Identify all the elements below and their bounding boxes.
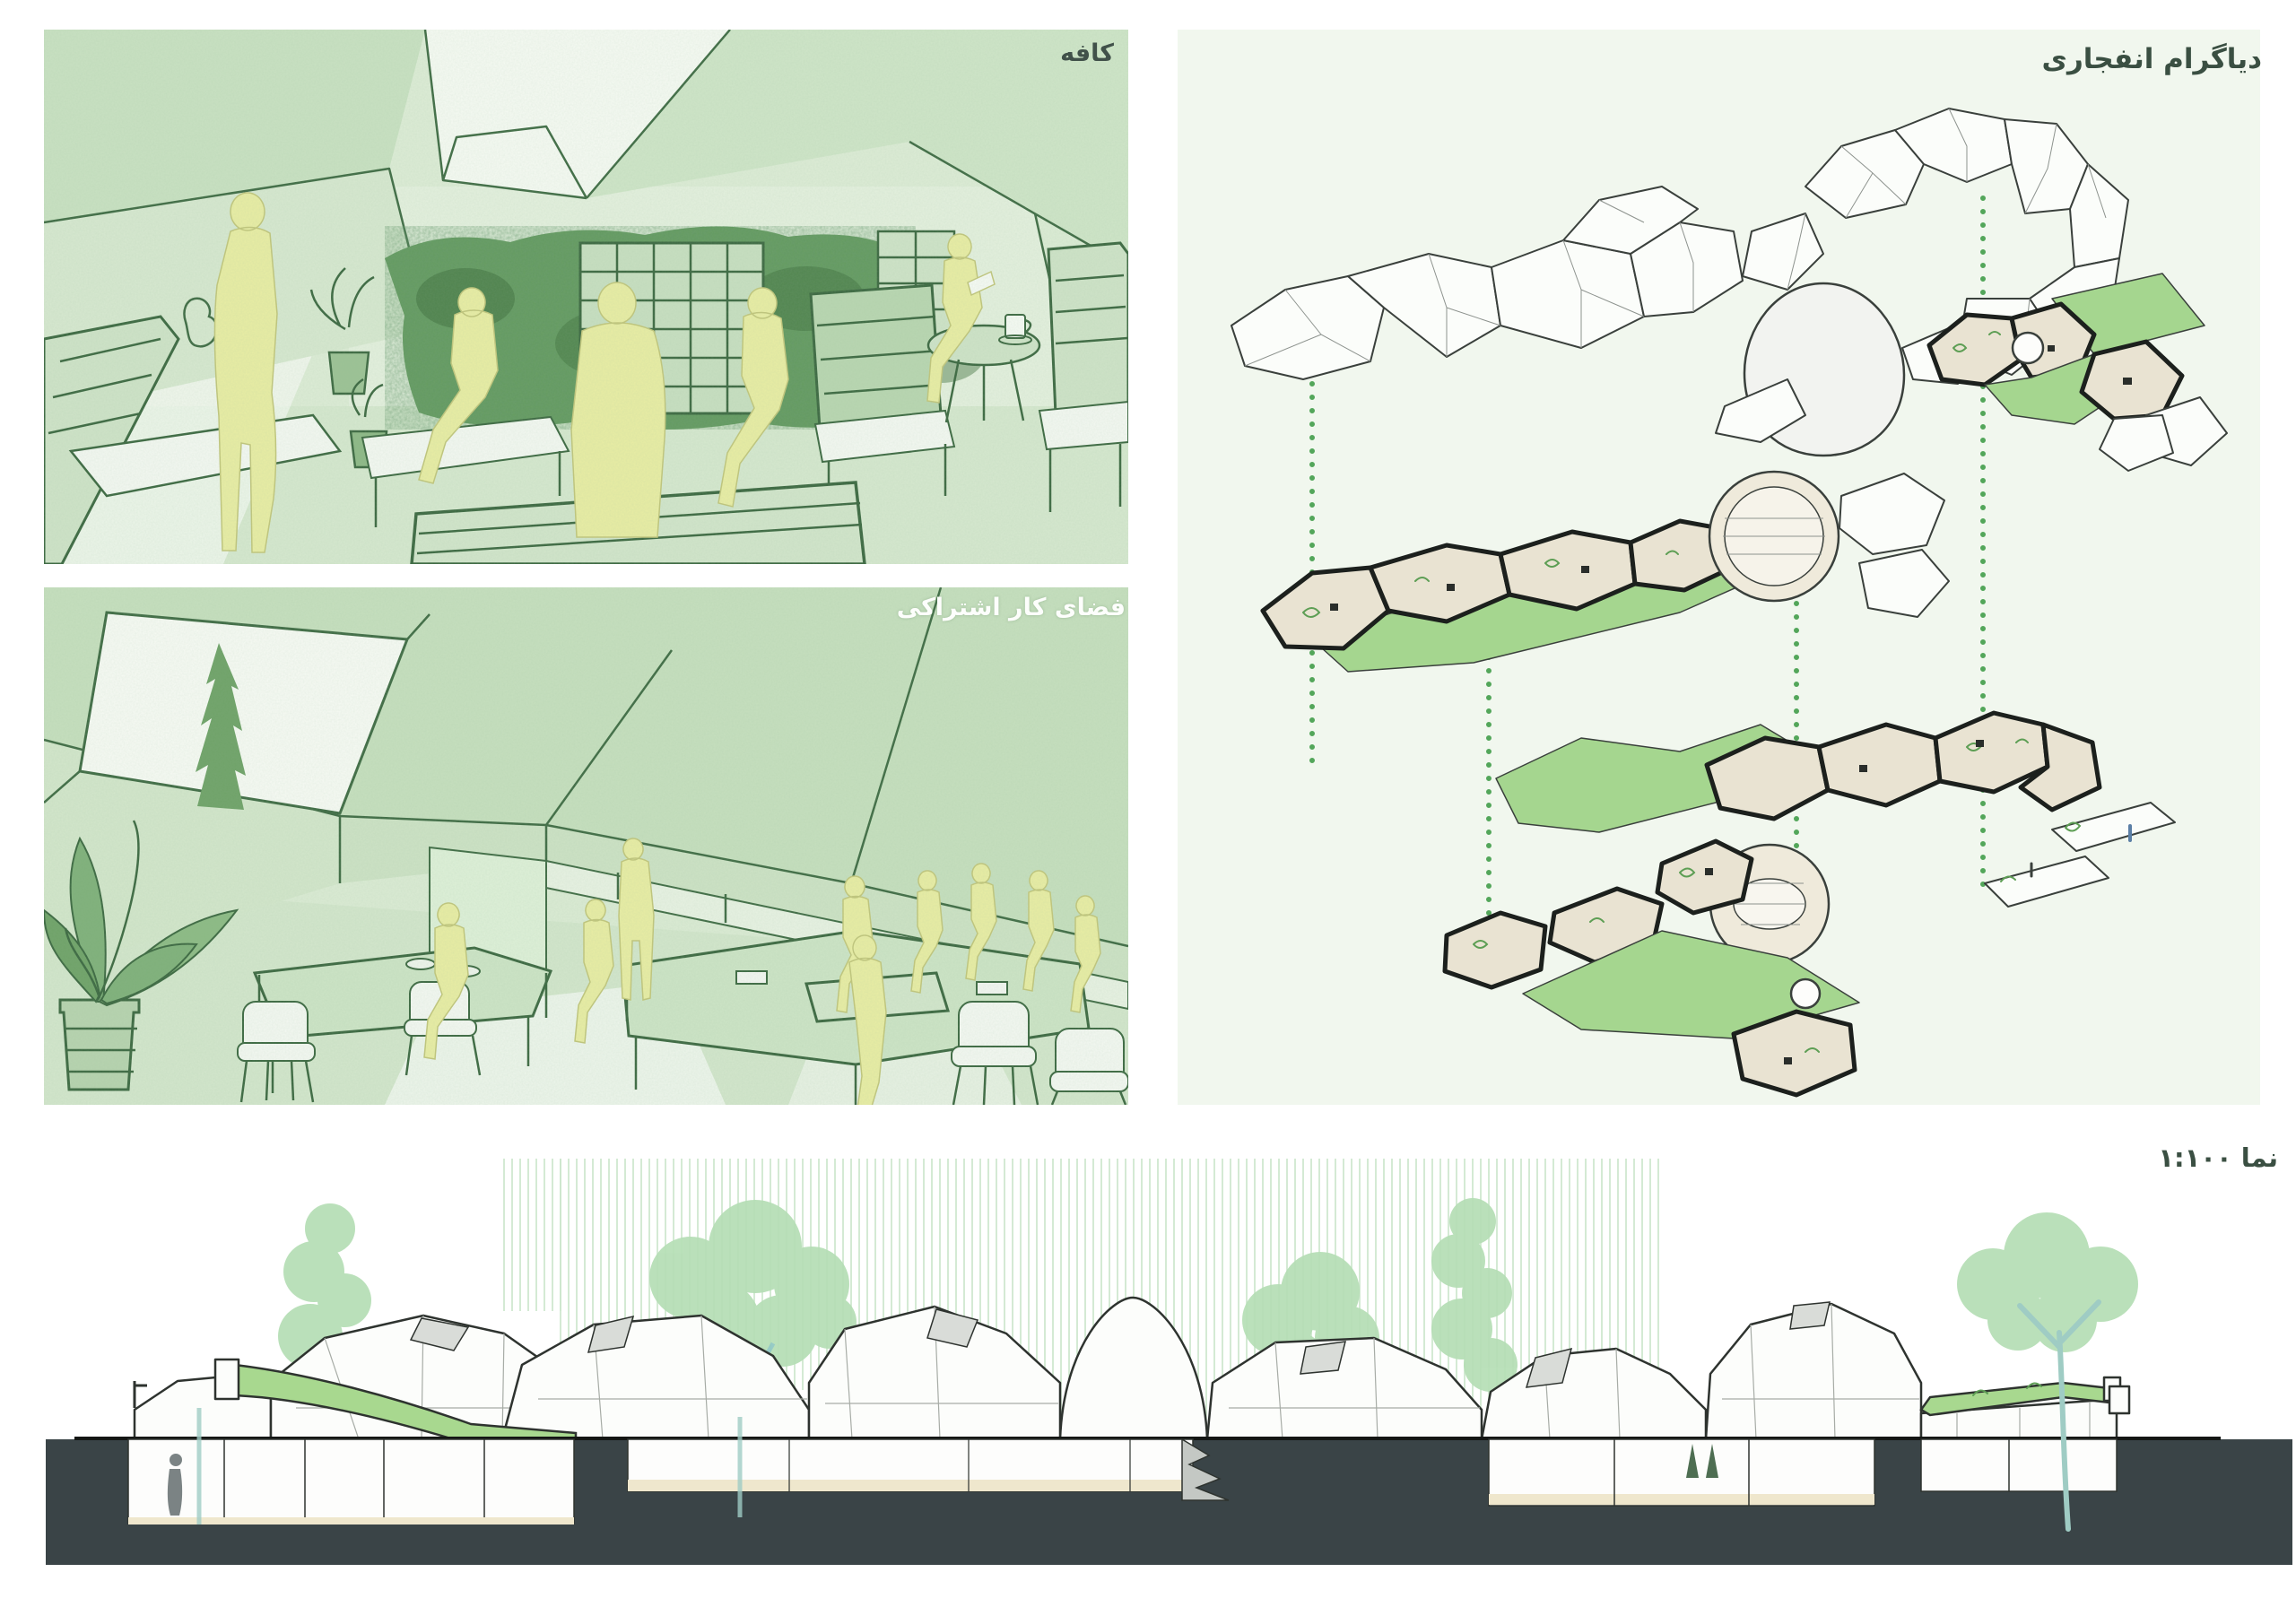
level3-plan	[1445, 713, 2100, 1095]
paper-texture	[44, 30, 1128, 564]
ramp-parapet	[215, 1359, 239, 1399]
roof-wireframe-left	[1231, 187, 1743, 379]
coworking-render-panel: .	[44, 587, 1128, 1105]
cafe-render-panel	[44, 30, 1128, 564]
presentation-board: .	[0, 0, 2296, 1607]
coworking-render: .	[44, 587, 1128, 1105]
exploded-axon-panel	[1178, 30, 2260, 1105]
level2-plan	[1263, 472, 1949, 672]
paper-texture	[44, 587, 1128, 1105]
detached-ramps	[1985, 803, 2175, 907]
elevation-panel	[0, 1112, 2296, 1607]
coworking-label: فضای کار اشتراکی	[897, 594, 1126, 621]
cafe-render	[44, 30, 1128, 564]
exploded-axon-diagram	[1178, 30, 2260, 1105]
cafe-label: کافه	[1060, 39, 1114, 67]
exploded-diagram-label: دیاگرام انفجاری	[2042, 43, 2262, 75]
elevation-scale-label: نما ۱:۱۰۰	[2158, 1142, 2278, 1173]
elevation-drawing	[0, 1112, 2296, 1607]
